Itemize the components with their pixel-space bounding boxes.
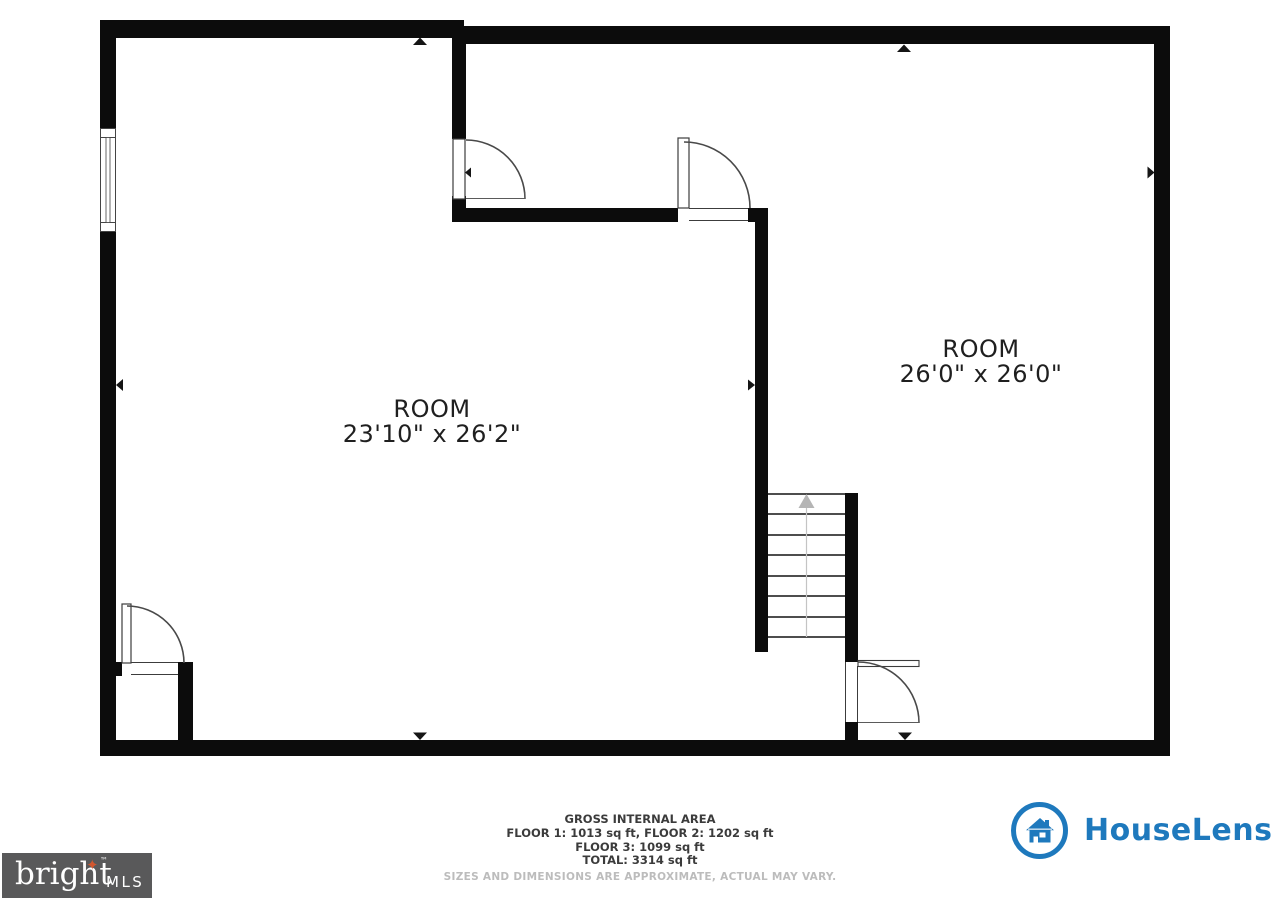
door-swing-arc xyxy=(858,662,919,723)
door-bottom-right xyxy=(846,661,920,724)
marker-bottom-right-down xyxy=(898,733,912,741)
wall-stairs-right-lower xyxy=(845,722,858,746)
room-name: ROOM xyxy=(272,397,592,422)
wall-alcove-vertical xyxy=(452,38,466,139)
door-leaf xyxy=(678,138,689,208)
room-label-left: ROOM 23'10" x 26'2" xyxy=(272,397,592,447)
star-icon: ✦ xyxy=(86,856,99,874)
wall-closet-right xyxy=(178,662,193,756)
area-disclaimer: SIZES AND DIMENSIONS ARE APPROXIMATE, AC… xyxy=(0,871,1280,885)
door-swing-arc xyxy=(684,142,750,208)
marker-door-leaf xyxy=(465,168,471,178)
door-swing-arc xyxy=(127,606,184,663)
door-leaf xyxy=(858,661,919,667)
marker-right-wall xyxy=(1148,167,1155,179)
houselens-circle xyxy=(1011,802,1068,859)
door-leaf xyxy=(122,604,131,663)
houselens-logo: HouseLens xyxy=(1011,802,1272,859)
marker-bottom-left-down xyxy=(413,733,427,741)
door-top-left xyxy=(453,139,525,199)
marker-left-wall xyxy=(116,379,123,391)
bright-mls-logo: bright ✦ ™ MLS xyxy=(2,853,152,898)
room-dimensions: 26'0" x 26'0" xyxy=(821,362,1141,387)
room-dimensions: 23'10" x 26'2" xyxy=(272,422,592,447)
marker-top-left-up xyxy=(413,38,427,46)
door-top-right xyxy=(678,138,750,221)
wall-room-divider xyxy=(755,220,768,652)
wall-left-upper xyxy=(100,20,116,128)
stairs-up-arrow-icon xyxy=(799,494,815,508)
wall-stairs-right-upper xyxy=(845,493,858,662)
room-label-right: ROOM 26'0" x 26'0" xyxy=(821,337,1141,387)
wall-right xyxy=(1154,26,1170,756)
wall-mid-corner xyxy=(748,208,768,222)
stairs xyxy=(768,494,845,637)
door-leaf xyxy=(453,139,465,199)
door-closet xyxy=(122,604,184,675)
floor-plan-page: ROOM 23'10" x 26'2" ROOM 26'0" x 26'0" G… xyxy=(0,0,1280,904)
marker-divider-wall xyxy=(748,380,755,391)
wall-left-lower xyxy=(100,232,116,756)
room-name: ROOM xyxy=(821,337,1141,362)
walls xyxy=(100,20,1170,756)
floor-plan-drawing xyxy=(0,0,1280,904)
marker-top-right-up xyxy=(897,45,911,53)
wall-top-left xyxy=(100,20,464,38)
wall-mid-horizontal xyxy=(452,208,678,222)
houselens-wordmark: HouseLens xyxy=(1084,813,1272,848)
wall-closet-stub xyxy=(100,662,122,676)
trademark-symbol: ™ xyxy=(100,856,108,865)
measurement-markers xyxy=(116,38,1155,741)
window xyxy=(101,129,116,232)
house-icon xyxy=(1024,815,1056,847)
door-swing-arc xyxy=(466,140,525,199)
wall-bottom xyxy=(100,740,1170,756)
mls-wordmark: MLS xyxy=(106,873,144,891)
wall-top-right xyxy=(452,26,1170,44)
